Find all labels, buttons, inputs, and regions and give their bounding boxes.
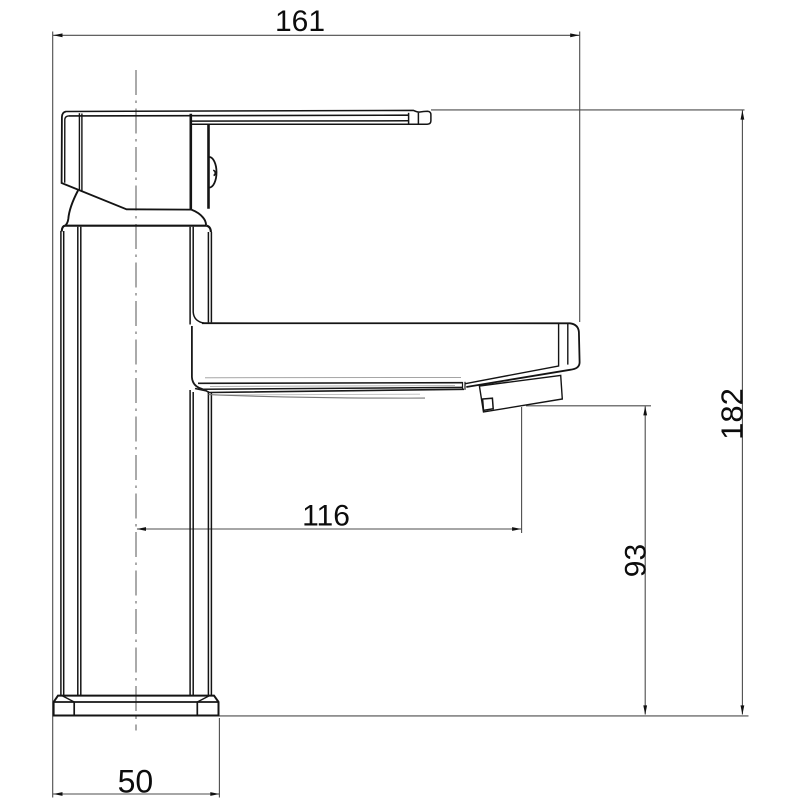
svg-text:182: 182 (714, 388, 749, 440)
svg-text:161: 161 (275, 5, 325, 38)
svg-text:116: 116 (302, 500, 350, 533)
svg-text:93: 93 (619, 544, 652, 577)
svg-text:50: 50 (118, 764, 154, 800)
